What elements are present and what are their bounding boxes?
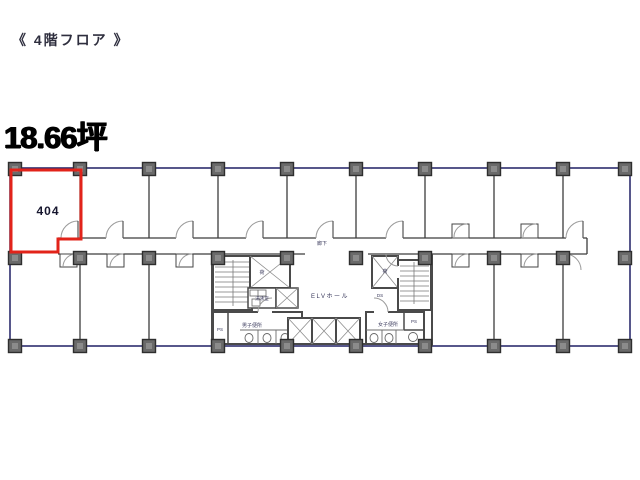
elv-hall-label: ELVホール [311, 293, 349, 300]
column [557, 252, 570, 265]
column [212, 340, 225, 353]
freight-elevator-right-label: 荷 [382, 268, 387, 275]
room-404-number: 404 [36, 204, 59, 218]
pipe-space-right-label: PS [411, 319, 417, 324]
column [143, 252, 156, 265]
corridor-label: 廊下 [317, 240, 327, 247]
column [143, 340, 156, 353]
kitchenette-label: 湯沸室 [255, 295, 269, 302]
womens-toilet-label: 女子便所 [378, 321, 398, 328]
column [350, 252, 363, 265]
column [350, 163, 363, 176]
column [212, 163, 225, 176]
column [488, 340, 501, 353]
mens-toilet-label: 男子便所 [242, 322, 262, 329]
column [419, 252, 432, 265]
column [74, 340, 87, 353]
column [281, 252, 294, 265]
column [74, 252, 87, 265]
floorplan-drawing: 404 廊下 ELVホール 荷 湯沸室 荷 DS 男子便所 PS 女子便所 PS [0, 0, 640, 480]
column [557, 340, 570, 353]
pipe-space-left-label: PS [217, 327, 223, 332]
column [419, 340, 432, 353]
column [557, 163, 570, 176]
column [9, 340, 22, 353]
column [619, 252, 632, 265]
duct-space-label: DS [377, 293, 383, 298]
column [281, 163, 294, 176]
column [488, 163, 501, 176]
column [281, 340, 294, 353]
column [143, 163, 156, 176]
column [212, 252, 225, 265]
column [619, 163, 632, 176]
floorplan-page: 《 4階フロア 》 18.66坪 [0, 0, 640, 480]
column [619, 340, 632, 353]
column [350, 340, 363, 353]
duct-shaft-left [276, 288, 298, 308]
freight-elevator-left-label: 荷 [259, 269, 264, 276]
column [419, 163, 432, 176]
column [488, 252, 501, 265]
